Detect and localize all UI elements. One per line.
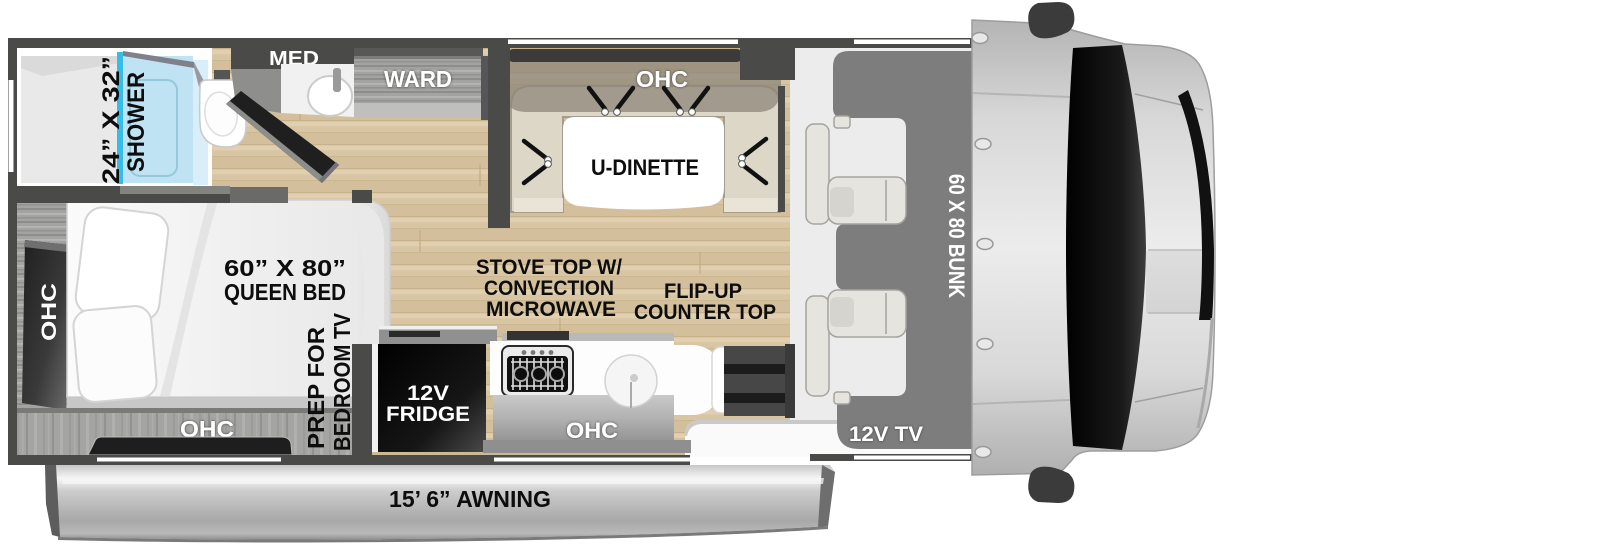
svg-text:CONVECTION: CONVECTION: [484, 277, 614, 300]
svg-text:12V TV: 12V TV: [849, 423, 923, 446]
svg-text:OHC: OHC: [566, 418, 618, 443]
svg-text:12V: 12V: [407, 382, 449, 405]
svg-text:MICROWAVE: MICROWAVE: [486, 298, 616, 321]
svg-text:OHC: OHC: [38, 283, 61, 341]
svg-text:STOVE TOP W/: STOVE TOP W/: [476, 256, 622, 279]
svg-text:COUNTER TOP: COUNTER TOP: [634, 301, 776, 324]
svg-text:BEDROOM TV: BEDROOM TV: [329, 312, 355, 451]
svg-text:FLIP-UP: FLIP-UP: [664, 280, 742, 303]
svg-text:U-DINETTE: U-DINETTE: [591, 155, 699, 180]
svg-text:FRIDGE: FRIDGE: [386, 403, 470, 426]
svg-text:QUEEN BED: QUEEN BED: [224, 279, 346, 305]
svg-text:60” X 80”: 60” X 80”: [224, 255, 346, 281]
svg-text:24” X 32”: 24” X 32”: [98, 56, 125, 184]
svg-text:WARD: WARD: [384, 66, 452, 92]
svg-text:PREP FOR: PREP FOR: [303, 327, 329, 449]
svg-text:60 X 80 BUNK: 60 X 80 BUNK: [944, 174, 969, 298]
svg-text:15’ 6” AWNING: 15’ 6” AWNING: [389, 486, 551, 512]
svg-text:SHOWER: SHOWER: [123, 72, 150, 172]
